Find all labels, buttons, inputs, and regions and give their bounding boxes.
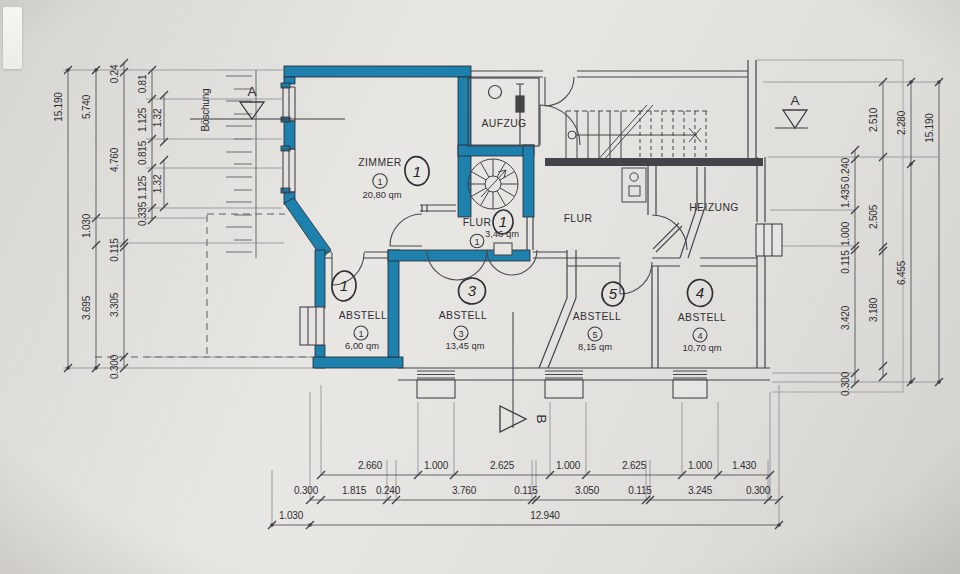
photo-vignette (0, 0, 960, 574)
floorplan-drawing: Böschung (0, 0, 960, 574)
floorplan-photo: Böschung (0, 0, 960, 574)
tape-strip (3, 7, 22, 69)
